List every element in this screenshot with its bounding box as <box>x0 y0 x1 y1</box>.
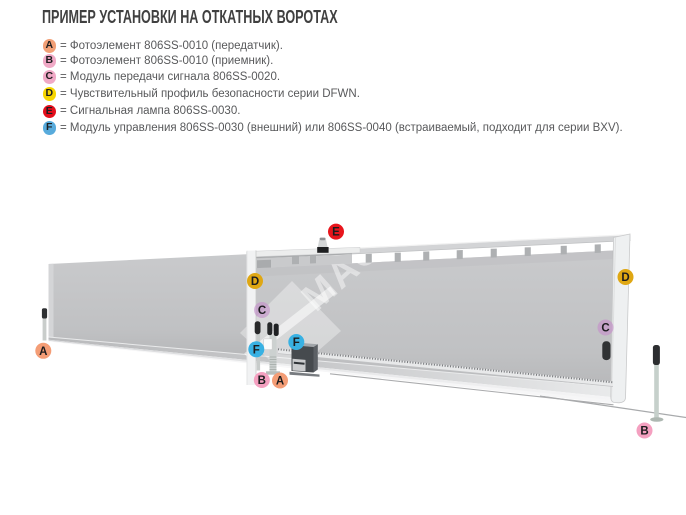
svg-text:E: E <box>332 227 340 239</box>
svg-text:D: D <box>251 276 259 288</box>
svg-text:A: A <box>39 346 47 358</box>
svg-text:C: C <box>258 305 266 317</box>
svg-text:B: B <box>640 426 648 438</box>
svg-text:A: A <box>276 376 284 388</box>
svg-text:F: F <box>293 337 300 349</box>
svg-text:C: C <box>601 323 609 335</box>
svg-text:D: D <box>621 272 629 284</box>
svg-text:B: B <box>258 375 266 387</box>
svg-text:F: F <box>253 344 260 356</box>
